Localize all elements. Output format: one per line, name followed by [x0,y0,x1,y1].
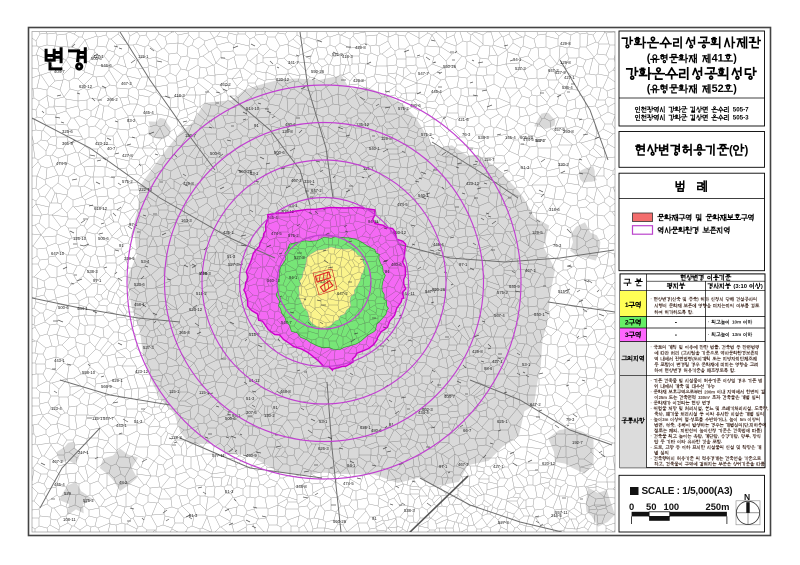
svg-text:3m: 3m [662,417,668,422]
svg-text:647-2: 647-2 [530,402,541,407]
svg-text:427-1: 427-1 [93,54,104,59]
svg-text:505-7: 505-7 [733,107,749,114]
svg-text:1: 1 [625,302,629,309]
svg-text:527-3: 527-3 [498,520,509,525]
svg-text:423-12: 423-12 [466,181,480,186]
svg-text:625-1: 625-1 [497,419,508,424]
svg-text:429-8: 429-8 [353,78,364,83]
svg-text:547-7: 547-7 [103,416,114,421]
svg-text:547-7: 547-7 [535,138,546,143]
svg-text:126-10: 126-10 [73,236,87,241]
svg-text:,: , [678,428,679,433]
svg-text:91: 91 [385,269,390,274]
svg-text:429-8: 429-8 [183,181,194,186]
svg-text:404-7: 404-7 [444,394,455,399]
svg-text:575-2: 575-2 [398,106,409,111]
svg-text:529: 529 [64,491,72,496]
svg-text:445-4: 445-4 [54,482,65,487]
svg-text:533-6: 533-6 [134,282,145,287]
svg-text:83-2: 83-2 [127,118,136,123]
svg-text:·: · [651,378,652,383]
svg-text:435-1: 435-1 [223,230,234,235]
svg-text:557-11: 557-11 [555,510,568,515]
svg-text:,: , [748,423,749,428]
svg-text:341-7: 341-7 [288,60,299,65]
svg-text:626-3: 626-3 [318,446,329,451]
svg-text:547-7: 547-7 [418,71,429,76]
svg-text:418-3: 418-3 [342,54,353,59]
svg-text:.: . [692,310,693,315]
svg-text:244-11: 244-11 [402,291,415,296]
svg-text:10m: 10m [732,320,741,325]
svg-text:N: N [744,492,750,502]
svg-text:·: · [651,445,652,450]
svg-text:307-5: 307-5 [246,410,257,415]
svg-text:·: · [651,456,652,461]
svg-text:SCALE : 1/5,000(A3): SCALE : 1/5,000(A3) [642,486,733,497]
svg-text:·: · [708,320,710,325]
svg-text:334-1: 334-1 [304,179,315,184]
svg-text:620-12: 620-12 [542,461,556,466]
svg-text:618-12: 618-12 [94,206,108,211]
svg-text:480-6: 480-6 [391,262,402,267]
svg-text:51-3: 51-3 [521,165,530,170]
svg-text:(: ( [647,53,651,65]
svg-text:79-3: 79-3 [566,417,575,422]
svg-text:647-2: 647-2 [337,291,348,296]
svg-text:445-4: 445-4 [433,242,444,247]
svg-text:51-3: 51-3 [189,513,198,518]
svg-text:575-2: 575-2 [122,179,133,184]
svg-text:421-6: 421-6 [458,117,469,122]
svg-text:527-3: 527-3 [228,262,239,267]
svg-text:130-2: 130-2 [264,413,275,418]
svg-text:515-2: 515-2 [196,291,207,296]
svg-text:123-4: 123-4 [51,406,62,411]
svg-text:25m: 25m [659,395,668,400]
svg-text:(: ( [729,145,733,157]
svg-text:217-1: 217-1 [78,450,89,455]
svg-text:429-8: 429-8 [472,349,483,354]
svg-text:348-8: 348-8 [296,484,307,489]
svg-text:575-2: 575-2 [83,498,94,503]
svg-text:192-7: 192-7 [572,440,583,445]
svg-text:505-3: 505-3 [733,115,749,122]
svg-text:550-26: 550-26 [443,64,457,69]
svg-text:566-9: 566-9 [101,384,112,389]
svg-text:527-3: 527-3 [294,255,305,260]
svg-text:448-8: 448-8 [280,389,291,394]
svg-text:2: 2 [625,320,629,327]
svg-text:108-11: 108-11 [63,517,76,522]
svg-text:94-1: 94-1 [347,463,356,468]
svg-text:647-10: 647-10 [51,251,65,256]
svg-text:500-6: 500-6 [210,151,221,156]
svg-text:325-6: 325-6 [62,129,73,134]
svg-text:575-2: 575-2 [288,233,299,238]
svg-text:129-5: 129-5 [532,230,543,235]
svg-text:427-1: 427-1 [493,464,504,469]
svg-text:550-26: 550-26 [311,69,325,74]
svg-text:53-4: 53-4 [141,259,150,264]
svg-text:620-12: 620-12 [276,77,290,82]
svg-text:458-1: 458-1 [134,302,145,307]
svg-text:51-3: 51-3 [225,489,234,494]
svg-text:91: 91 [254,123,259,128]
svg-text:,: , [738,434,739,439]
svg-text:,: , [702,434,703,439]
svg-text:427-1: 427-1 [492,359,503,364]
svg-text:647-2: 647-2 [311,188,322,193]
svg-text:500-6: 500-6 [274,150,285,155]
svg-text:5m: 5m [740,417,746,422]
svg-text:540-1: 540-1 [534,312,545,317]
svg-text:500-6: 500-6 [98,236,109,241]
svg-text:97-1: 97-1 [439,464,448,469]
svg-text:423-12: 423-12 [135,369,149,374]
svg-text:13m: 13m [732,332,741,337]
svg-text:640-9: 640-9 [509,284,520,289]
svg-text:623-12: 623-12 [189,307,203,312]
svg-text:97-1: 97-1 [459,262,468,267]
svg-text:467-2: 467-2 [121,81,132,86]
svg-text:538-3: 538-3 [478,135,489,140]
svg-text:(3:10: (3:10 [733,284,747,290]
svg-text:605-20: 605-20 [520,135,534,140]
svg-text:514-10: 514-10 [246,106,260,111]
svg-text:445-4: 445-4 [143,110,154,115]
svg-text:365-9: 365-9 [62,141,73,146]
svg-text:467-2: 467-2 [52,459,63,464]
svg-text:(: ( [647,83,651,95]
svg-text:145-4: 145-4 [505,135,516,140]
svg-text:48-2: 48-2 [119,480,128,485]
svg-text:567-4: 567-4 [494,313,505,318]
svg-text:0: 0 [629,501,634,512]
svg-text:427-8: 427-8 [122,153,133,158]
svg-text:3: 3 [625,332,629,339]
svg-text:51-3: 51-3 [227,254,236,259]
svg-text:427-1: 427-1 [564,75,575,80]
svg-text:,: , [663,461,664,466]
svg-text:,: , [663,423,664,428]
svg-text:423-12: 423-12 [95,141,109,146]
svg-text:129-8: 129-8 [171,435,182,440]
svg-text:443-1: 443-1 [116,423,127,428]
svg-text:52: 52 [712,83,724,95]
svg-text:,: , [751,406,752,411]
svg-text:467-2: 467-2 [291,178,302,183]
svg-text:457-9: 457-9 [554,127,565,132]
svg-text:·: · [708,332,710,337]
svg-text:429-8: 429-8 [355,45,366,50]
svg-text:97-1: 97-1 [93,278,102,283]
svg-text:629-1: 629-1 [112,378,123,383]
svg-text:115-1: 115-1 [92,416,103,421]
svg-text:443-1: 443-1 [54,358,65,363]
svg-text:538-3: 538-3 [87,269,98,274]
svg-text:,: , [674,423,675,428]
svg-text:546-6: 546-6 [101,63,112,68]
svg-text:647-2: 647-2 [548,68,559,73]
svg-text:318-6: 318-6 [549,207,560,212]
svg-text:94-1: 94-1 [513,57,522,62]
svg-text:·: · [689,417,690,422]
svg-text:118-7: 118-7 [484,157,495,162]
svg-text:577-11: 577-11 [212,453,225,458]
svg-text:115-1: 115-1 [169,389,180,394]
svg-text:163-3: 163-3 [181,218,192,223]
svg-text:467-2: 467-2 [220,82,231,87]
svg-text:115-1: 115-1 [138,54,149,59]
svg-text:): ) [733,83,737,95]
svg-text:76-3: 76-3 [553,243,562,248]
svg-text:·: · [651,297,652,302]
svg-text:540-1: 540-1 [369,146,380,151]
svg-text:50: 50 [646,501,656,512]
svg-text:330m²: 330m² [698,395,711,400]
svg-text:·: · [651,417,652,422]
svg-text:527-3: 527-3 [515,66,526,71]
svg-text:,: , [718,434,719,439]
svg-text:98-6: 98-6 [484,366,493,371]
svg-text:53-1: 53-1 [250,171,259,176]
svg-text:540-1: 540-1 [418,193,429,198]
svg-text:474-5: 474-5 [397,202,408,207]
svg-text:53-1: 53-1 [522,362,531,367]
svg-text:620-12: 620-12 [79,84,93,89]
svg-text:527-3: 527-3 [143,345,154,350]
svg-text:100: 100 [664,501,680,512]
svg-text:.: . [734,368,735,373]
svg-text:418-3: 418-3 [174,93,185,98]
svg-text:445-4: 445-4 [431,89,442,94]
svg-text:467-2: 467-2 [458,462,469,467]
svg-text:474-5: 474-5 [343,481,354,486]
svg-text:·: · [651,400,652,405]
svg-text:,: , [663,412,664,417]
svg-text:484-1: 484-1 [77,306,88,311]
svg-text:53-1: 53-1 [319,419,328,424]
svg-text:): ) [733,53,737,65]
svg-text:434-4: 434-4 [418,410,429,415]
svg-text:66-7: 66-7 [463,428,472,433]
svg-text:91: 91 [119,243,124,248]
svg-text:625-1: 625-1 [360,425,371,430]
svg-text:91: 91 [372,516,377,521]
svg-text:319-5: 319-5 [124,256,135,261]
svg-text:129-8: 129-8 [282,129,293,134]
svg-text:467-1: 467-1 [525,268,536,273]
svg-text:40-7: 40-7 [107,146,116,151]
svg-text:250m: 250m [706,501,730,512]
svg-text:575-2: 575-2 [421,132,432,137]
svg-text:76-3: 76-3 [462,132,471,137]
svg-text:·: · [651,389,652,394]
svg-text:,: , [719,345,720,350]
svg-text:.: . [721,439,722,444]
svg-text:474-5: 474-5 [56,161,67,166]
svg-text:515-2: 515-2 [558,289,569,294]
svg-text:94-1: 94-1 [289,275,298,280]
svg-text:,: , [767,406,768,411]
svg-text:91: 91 [273,405,278,410]
svg-text:41: 41 [712,53,724,65]
svg-text:266-2: 266-2 [107,97,118,102]
svg-text:365-8: 365-8 [179,330,190,335]
svg-text:200m: 200m [704,389,715,394]
svg-text:,: , [662,445,663,450]
svg-text:51-3: 51-3 [246,396,255,401]
svg-text:500-6: 500-6 [225,416,236,421]
svg-text:): ) [761,284,763,290]
svg-text:474-5: 474-5 [271,231,282,236]
svg-text:): ) [745,145,749,157]
svg-text:·: · [651,406,652,411]
svg-text:575-2: 575-2 [497,290,508,295]
svg-text:51-3: 51-3 [134,419,143,424]
svg-text:550-26: 550-26 [333,519,347,524]
svg-text:,: , [726,417,727,422]
svg-text:450-9: 450-9 [246,453,257,458]
svg-text:330-2: 330-2 [558,162,569,167]
svg-text:547-7: 547-7 [425,289,436,294]
svg-text:429-8: 429-8 [560,41,571,46]
svg-text:,: , [702,406,703,411]
svg-text:,: , [750,434,751,439]
svg-text:500-6: 500-6 [58,305,69,310]
svg-text:558-10: 558-10 [82,370,96,375]
svg-text:538-3: 538-3 [404,508,415,513]
svg-text:·: · [651,434,652,439]
svg-text:536-4: 536-4 [562,85,573,90]
svg-text:·: · [651,345,652,350]
svg-text:129-8: 129-8 [560,60,571,65]
